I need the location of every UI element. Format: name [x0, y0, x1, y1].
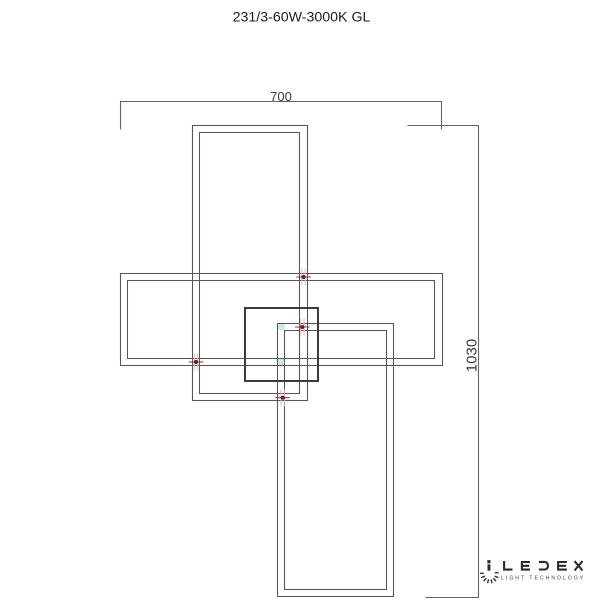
svg-text:1030: 1030	[463, 339, 480, 372]
svg-text:231/3-60W-3000K GL: 231/3-60W-3000K GL	[233, 10, 371, 26]
svg-text:700: 700	[270, 89, 292, 104]
svg-text:LIGHT TECHNOLOGY: LIGHT TECHNOLOGY	[501, 576, 585, 582]
